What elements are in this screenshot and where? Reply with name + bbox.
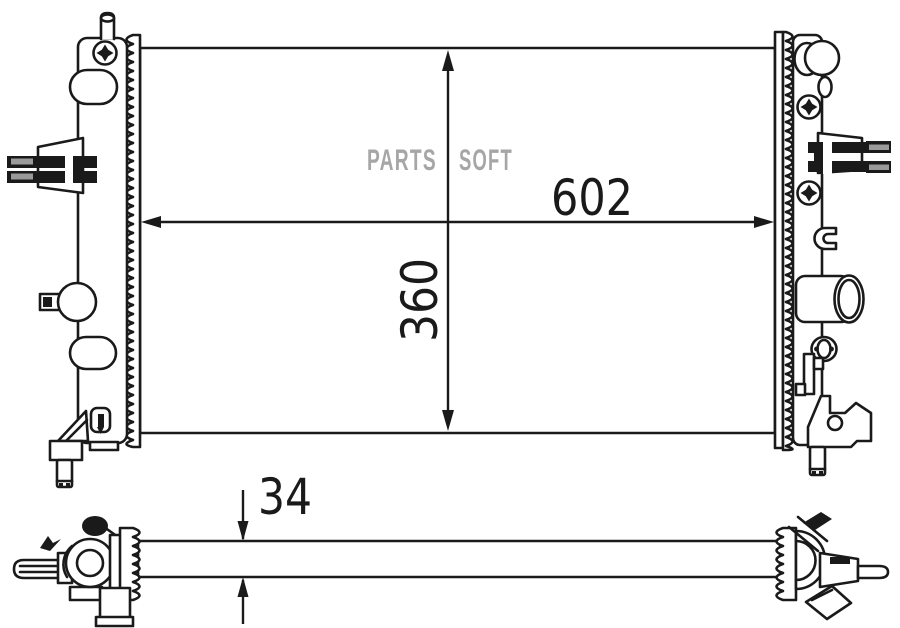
dim-height-value: 360	[391, 258, 449, 342]
connector-bridge	[814, 142, 823, 172]
fitting-clip	[40, 536, 61, 551]
bracket-hole	[828, 416, 842, 430]
spring-clip	[815, 228, 837, 249]
end-fitting-right	[777, 512, 889, 619]
outlet-port	[796, 276, 864, 323]
dim-width-value: 602	[551, 169, 633, 227]
retaining-clip-left	[91, 408, 110, 434]
tank-boss-upper	[70, 70, 117, 104]
core-profile	[138, 541, 780, 577]
bracket-brace	[58, 411, 88, 441]
drain-ring	[58, 283, 96, 321]
mounting-pin-right	[810, 447, 825, 475]
mounting-bracket-lower-right	[808, 396, 871, 476]
pin-contact-upper	[11, 159, 33, 165]
pin-contact-upper	[869, 145, 889, 151]
tab-upper	[814, 358, 823, 369]
watermark-soft: SOFT	[459, 144, 513, 177]
drain-tab-dark	[43, 297, 52, 307]
pin-contact-lower	[11, 174, 33, 180]
oval-dot-left	[814, 347, 819, 352]
sensor-connector-right	[808, 133, 891, 174]
end-fitting-left	[14, 516, 140, 626]
dim-thickness-arrow-down	[238, 521, 249, 541]
connector-slot	[65, 154, 73, 185]
inlet-port	[805, 41, 839, 75]
left-tank	[7, 13, 127, 488]
right-tank	[793, 35, 891, 476]
pin-foot-a	[59, 483, 63, 488]
pipe-stub-right	[858, 566, 888, 578]
pin-foot-b	[66, 483, 70, 488]
dim-thickness-value: 34	[258, 468, 312, 526]
watermark-parts: PARTS	[367, 144, 437, 177]
inlet-loop	[819, 77, 832, 97]
mounting-bracket-lower-left	[50, 411, 88, 488]
radiator-core	[140, 48, 775, 433]
pin-foot-a	[812, 471, 816, 476]
radiator-technical-drawing: 602 360 34 PARTS SOFT	[0, 0, 900, 628]
fitting-step	[70, 587, 102, 600]
tank-bottom-tab	[90, 442, 118, 450]
fitting-box	[100, 588, 130, 618]
tab-lower	[796, 384, 805, 395]
bracket-box	[50, 441, 82, 460]
connector-bridge	[73, 156, 83, 183]
pin-contact-lower	[869, 165, 889, 171]
filler-pipe-rim	[101, 14, 114, 21]
mounting-pin-left	[57, 460, 72, 487]
stub-shade	[830, 557, 850, 564]
sensor-connector-left	[7, 138, 97, 193]
connector-slot	[823, 140, 832, 174]
core-side-plate-left	[127, 35, 141, 447]
dim-thickness-arrow-up	[238, 577, 249, 597]
fitting-roof	[803, 512, 832, 530]
clip-stem	[98, 414, 104, 427]
side-view	[14, 512, 888, 626]
drain-plug	[40, 283, 96, 321]
tank-boss-lower	[70, 337, 116, 369]
pin-foot-b	[819, 471, 823, 476]
oval-dot-right	[829, 347, 834, 352]
fitting-box-lip	[96, 617, 133, 626]
core-serration-right	[783, 32, 793, 450]
